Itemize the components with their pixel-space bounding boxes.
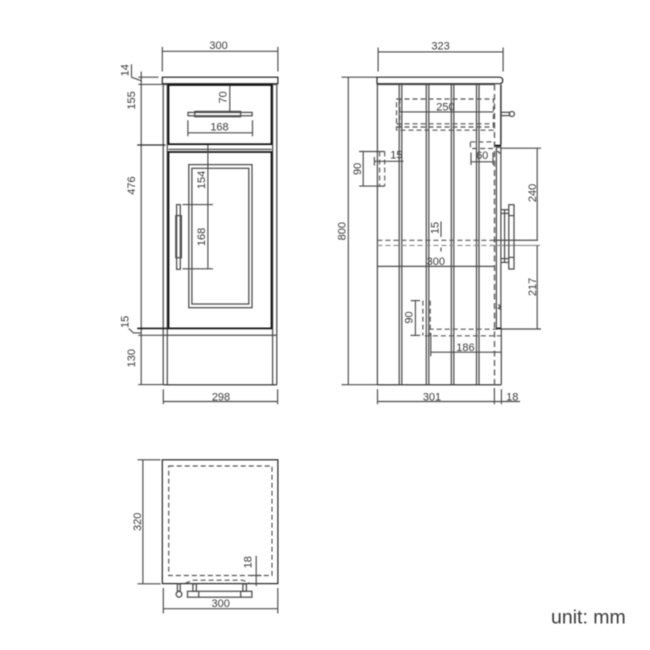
svg-text:130: 130 <box>126 349 138 367</box>
svg-text:60: 60 <box>476 150 488 162</box>
svg-text:300: 300 <box>212 598 230 610</box>
svg-text:320: 320 <box>132 513 144 531</box>
svg-text:240: 240 <box>527 184 539 202</box>
svg-text:250: 250 <box>436 102 454 114</box>
svg-text:298: 298 <box>212 391 230 403</box>
svg-text:15: 15 <box>120 316 132 328</box>
svg-text:186: 186 <box>456 342 474 354</box>
svg-text:155: 155 <box>126 91 138 109</box>
svg-text:301: 301 <box>423 391 441 403</box>
svg-text:18: 18 <box>242 556 254 568</box>
svg-text:15: 15 <box>390 150 402 162</box>
svg-text:18: 18 <box>506 391 518 403</box>
svg-text:90: 90 <box>352 163 364 175</box>
svg-text:15: 15 <box>430 222 442 234</box>
svg-text:300: 300 <box>427 256 445 268</box>
svg-text:14: 14 <box>119 64 131 76</box>
svg-text:800: 800 <box>336 222 348 240</box>
svg-text:unit: mm: unit: mm <box>551 607 626 629</box>
svg-text:323: 323 <box>431 40 449 52</box>
svg-text:90: 90 <box>404 311 416 323</box>
svg-text:476: 476 <box>126 176 138 194</box>
svg-text:300: 300 <box>209 40 227 52</box>
svg-text:168: 168 <box>196 228 208 246</box>
svg-text:217: 217 <box>527 278 539 296</box>
svg-text:168: 168 <box>210 121 228 133</box>
svg-text:154: 154 <box>196 171 208 189</box>
svg-text:70: 70 <box>218 91 230 103</box>
